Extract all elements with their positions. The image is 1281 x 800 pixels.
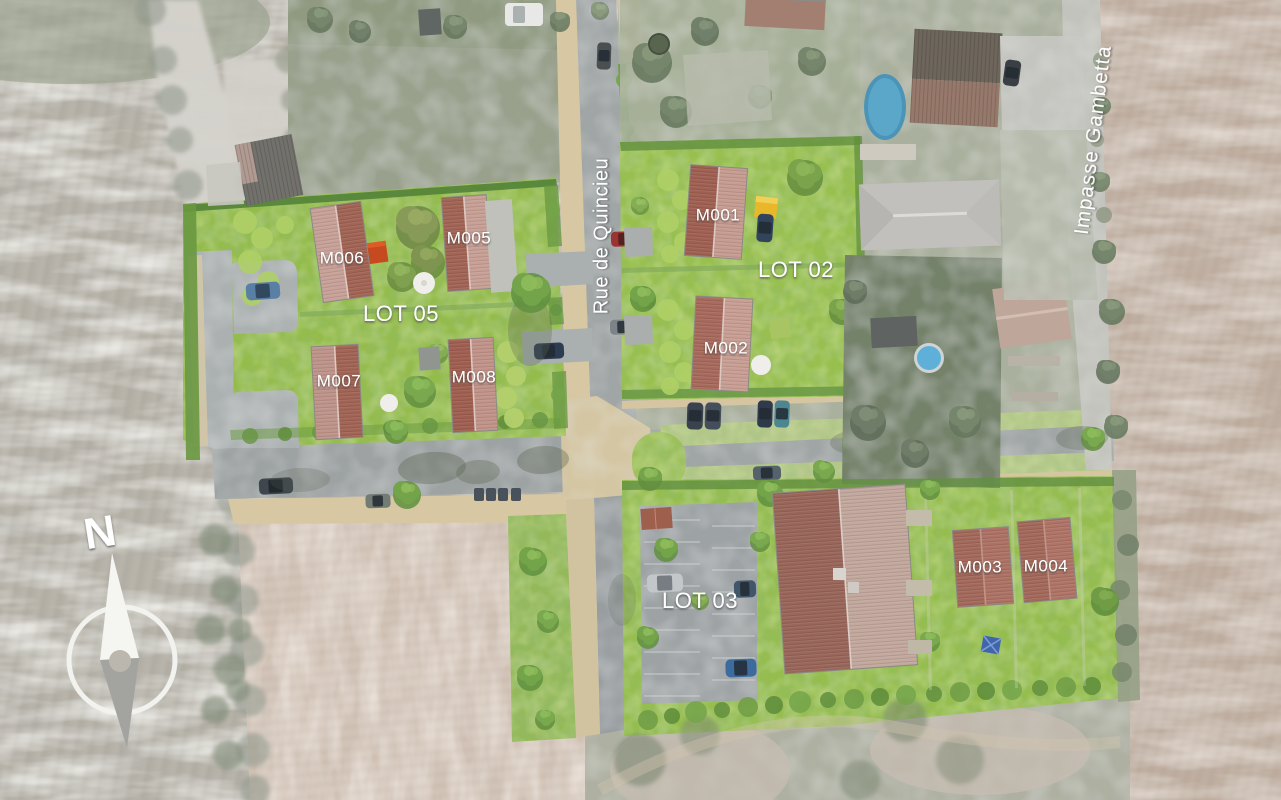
- svg-text:M008: M008: [452, 367, 497, 386]
- svg-text:LOT 05: LOT 05: [363, 301, 439, 326]
- svg-text:M001: M001: [696, 205, 741, 224]
- svg-text:M004: M004: [1024, 556, 1069, 575]
- svg-text:M003: M003: [958, 557, 1003, 576]
- svg-text:M007: M007: [317, 371, 362, 390]
- svg-text:LOT 02: LOT 02: [758, 257, 834, 282]
- svg-text:M005: M005: [447, 228, 492, 247]
- svg-text:LOT 03: LOT 03: [662, 588, 738, 613]
- svg-text:M006: M006: [320, 248, 365, 267]
- svg-text:Rue de Quincieu: Rue de Quincieu: [590, 158, 612, 314]
- svg-text:M002: M002: [704, 338, 749, 357]
